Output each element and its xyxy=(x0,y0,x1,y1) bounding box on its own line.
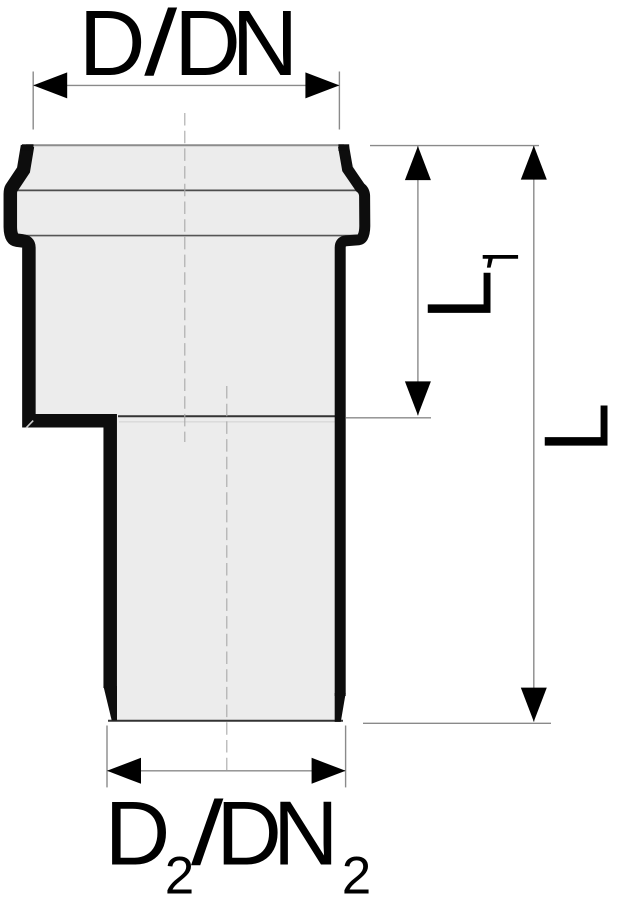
svg-text:L: L xyxy=(410,270,511,321)
svg-text:2: 2 xyxy=(342,846,371,905)
svg-text:N: N xyxy=(273,783,339,884)
svg-text:2: 2 xyxy=(165,846,194,905)
svg-text:/: / xyxy=(144,0,177,95)
svg-text:D: D xyxy=(105,783,171,884)
svg-text:D: D xyxy=(79,0,146,95)
svg-text:N: N xyxy=(232,0,299,95)
svg-text:L: L xyxy=(527,402,625,453)
